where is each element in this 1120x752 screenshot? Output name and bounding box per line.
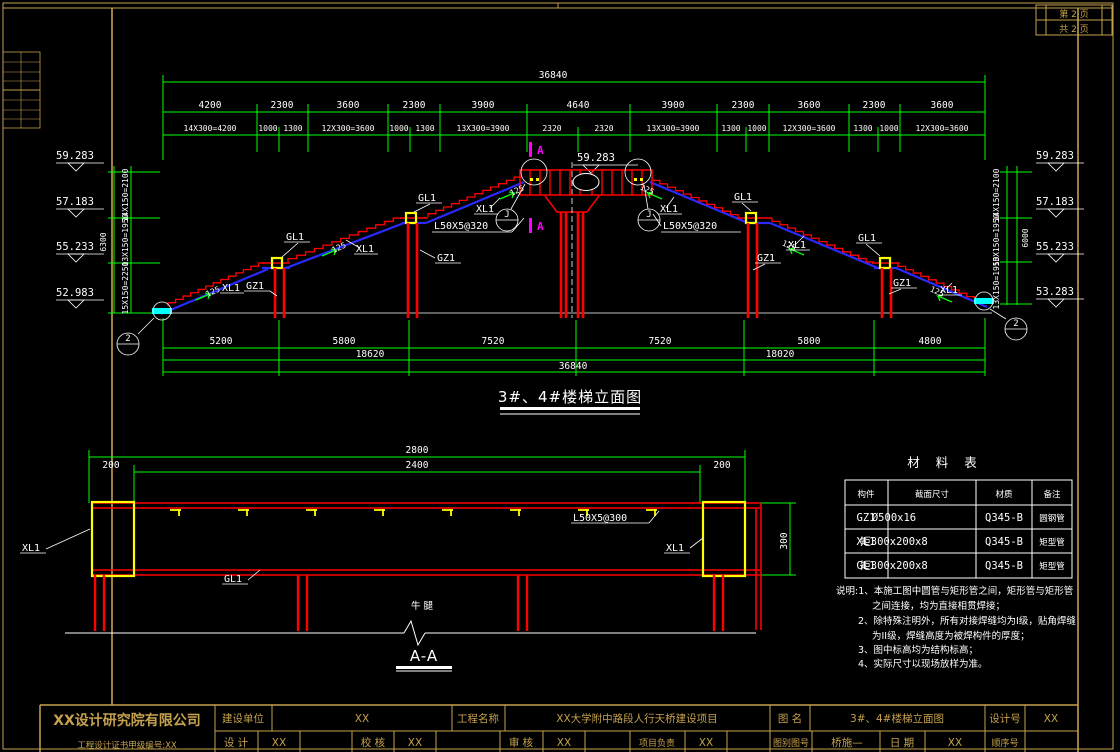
slope-arrows: [196, 192, 952, 302]
right-level-dimensions: 6000 14X150=2100 13X150=1950 13X150=1950…: [992, 150, 1084, 309]
note-line: 之间连接，均为直接相贯焊接；: [872, 600, 1005, 612]
detail-callout: 2: [1005, 318, 1027, 340]
dim-text: 3600: [798, 100, 821, 111]
dim-text: 18620: [356, 349, 385, 360]
svg-text:XL1: XL1: [666, 543, 684, 554]
signature-boxes: [3, 52, 40, 128]
svg-text:L50X5@320: L50X5@320: [434, 221, 488, 232]
dim-text: 1300: [721, 124, 740, 133]
top-dimension-chain: 36840 4200 2300 3600 2300 3900 4640 3900…: [163, 70, 985, 160]
svg-text:Q345-B: Q345-B: [985, 536, 1023, 548]
table-header: 截面尺寸: [915, 489, 950, 500]
field-value: XX: [1044, 713, 1058, 725]
dim-text: 2320: [594, 124, 613, 133]
dim-text: 2320: [542, 124, 561, 133]
dim-text: 15X150=2250: [121, 261, 130, 314]
member-label-xl1: XL1: [658, 197, 682, 215]
dim-text: 1000: [389, 124, 408, 133]
cad-drawing-sheet: 第 2 页 共 2 页 36840 4200 2300 3600 2300 39…: [0, 0, 1120, 752]
table-header: 备注: [1043, 489, 1061, 500]
stair-structure: A A 2 2 J J: [117, 142, 1027, 355]
field-label: 图 名: [778, 712, 802, 725]
svg-text:圆钢管: 圆钢管: [1039, 513, 1065, 524]
field-value: XX: [408, 737, 422, 749]
member-label-gz1: GZ1: [889, 278, 917, 294]
section-cut-a: A A: [529, 142, 544, 233]
dim-text: 14X300=4200: [184, 124, 237, 133]
table-row: GL1 矩300x200x8 Q345-B 矩型管: [857, 559, 1065, 572]
dim-text: 2300: [863, 100, 886, 111]
member-label-angle: L50X5@300: [571, 511, 659, 524]
note-line: 2、除特殊注明外，所有对接焊缝均为I级，贴角焊缝: [858, 615, 1076, 627]
table-title: 材 料 表: [907, 455, 982, 470]
material-table: 材 料 表 构件 截面尺寸 材质 备注 GZ1 Ø500x16 Q345-B 圆…: [845, 455, 1072, 578]
stair-steps: [288, 218, 402, 262]
member-label-gz1: GZ1: [244, 281, 277, 296]
dim-text: 1300: [853, 124, 872, 133]
bearing-right: [974, 292, 1006, 319]
level-text: 59.283: [577, 152, 615, 164]
dim-text: 1000: [879, 124, 898, 133]
level-marker: 57.183: [56, 196, 104, 217]
dim-text: 200: [713, 460, 730, 471]
section-aa: 2800 2400 200 200 300: [20, 445, 796, 671]
svg-text:GL1: GL1: [858, 233, 876, 244]
dim-text: 12X300=3600: [783, 124, 836, 133]
dim-text: 4800: [919, 336, 942, 347]
dim-text: 6000: [1021, 228, 1030, 247]
dim-text: 200: [102, 460, 119, 471]
cut-label: A: [537, 144, 544, 157]
field-label: 校 核: [361, 736, 386, 749]
detail-number: J: [646, 210, 651, 220]
svg-text:GL1: GL1: [224, 574, 242, 585]
svg-text:Ø500x16: Ø500x16: [872, 512, 916, 524]
svg-text:XL1: XL1: [356, 244, 374, 255]
dim-text: 5800: [333, 336, 356, 347]
apex-platform: [520, 159, 652, 195]
note-line: 4、实际尺寸以现场放样为准。: [858, 658, 988, 670]
page-number: 第 2 页: [1059, 8, 1088, 20]
svg-text:XL1: XL1: [660, 204, 678, 215]
page-number-table: 第 2 页 共 2 页: [1036, 5, 1112, 35]
svg-text:GZ1: GZ1: [757, 253, 775, 264]
dim-text: 12X300=3600: [322, 124, 375, 133]
field-label: 设计号: [989, 712, 1021, 725]
level-text: 57.183: [56, 196, 94, 208]
svg-text:矩300x200x8: 矩300x200x8: [860, 535, 927, 548]
svg-text:矩型管: 矩型管: [1039, 561, 1065, 572]
dim-text: 7520: [649, 336, 672, 347]
member-label-gl1: GL1: [414, 193, 442, 212]
page-total: 共 2 页: [1059, 24, 1088, 35]
general-notes: 说明:1、本施工图中圆管与矩形管之间，矩形管与矩形管 之间连接，均为直接相贯焊接…: [836, 585, 1076, 670]
svg-text:Q345-B: Q345-B: [985, 560, 1023, 572]
bottom-dimension-chain: 5200 5800 7520 7520 5800 4800 18620 1802…: [163, 318, 985, 376]
field-label: 图别图号: [773, 738, 809, 749]
table-row: XL1 矩300x200x8 Q345-B 矩型管: [857, 535, 1065, 548]
dim-text: 12X300=3600: [916, 124, 969, 133]
dim-text: 300: [779, 532, 790, 549]
company-cert: 工程设计证书甲级编号:XX: [77, 740, 177, 751]
bearing-left: [138, 302, 172, 334]
level-text: 57.183: [1036, 196, 1074, 208]
dim-text: 7520: [482, 336, 505, 347]
level-marker: 55.233: [1036, 241, 1084, 262]
detail-number: 2: [125, 334, 130, 344]
xl1-end-beam: [703, 502, 745, 576]
member-label-xl1: XL1: [220, 283, 244, 294]
dim-text: 36840: [539, 70, 568, 81]
slope-text: 125: [331, 241, 348, 255]
field-label: 审 核: [509, 736, 534, 749]
dim-text: 3600: [337, 100, 360, 111]
svg-text:XL1: XL1: [940, 285, 958, 296]
field-value: 3#、4#楼梯立面图: [850, 712, 944, 725]
field-label: 工程名称: [457, 712, 499, 725]
svg-text:L50X5@300: L50X5@300: [573, 513, 627, 524]
level-marker: 55.233: [56, 241, 104, 262]
dim-text: 2300: [271, 100, 294, 111]
svg-text:Q345-B: Q345-B: [985, 512, 1023, 524]
dim-text: 18020: [766, 349, 795, 360]
dim-text: 3900: [472, 100, 495, 111]
dim-text: 1000: [258, 124, 277, 133]
drawing-canvas: 第 2 页 共 2 页 36840 4200 2300 3600 2300 39…: [0, 0, 1120, 752]
dim-text: 2800: [406, 445, 429, 456]
dim-text: 1000: [747, 124, 766, 133]
svg-text:GL1: GL1: [734, 192, 752, 203]
dim-text: 13X300=3900: [647, 124, 700, 133]
member-label-xl1: XL1: [20, 529, 90, 554]
svg-text:XL1: XL1: [222, 283, 240, 294]
cut-label: A: [537, 220, 544, 233]
svg-text:GZ1: GZ1: [437, 253, 455, 264]
svg-text:GL1: GL1: [286, 232, 304, 243]
field-value: XX: [699, 737, 713, 749]
table-row: GZ1 Ø500x16 Q345-B 圆钢管: [857, 512, 1065, 524]
svg-text:XL1: XL1: [476, 204, 494, 215]
field-label: 日 期: [890, 737, 914, 749]
dim-text: 5800: [798, 336, 821, 347]
level-text: 52.983: [56, 287, 94, 299]
section-columns: [95, 575, 723, 631]
note-line: 说明:1、本施工图中圆管与矩形管之间，矩形管与矩形管: [836, 585, 1073, 597]
break-line: [404, 621, 425, 645]
svg-text:矩300x200x8: 矩300x200x8: [860, 559, 927, 572]
svg-text:GZ1: GZ1: [893, 278, 911, 289]
detail-number: 2: [1013, 319, 1018, 329]
field-value: XX: [557, 737, 571, 749]
drawing-title: 3#、4#楼梯立面图: [498, 388, 642, 406]
note-line: 为II级，焊缝高度为被焊构件的厚度；: [872, 630, 1030, 642]
dim-text: 5200: [210, 336, 233, 347]
level-marker: 52.983: [56, 287, 104, 308]
level-text: 53.283: [1036, 286, 1074, 298]
member-label-gl1: GL1: [732, 192, 758, 211]
dim-text: 13X300=3900: [457, 124, 510, 133]
title-block: XX设计研究院有限公司 工程设计证书甲级编号:XX 建设单位 XX 工程名称 X…: [40, 705, 1078, 752]
dim-text: 3900: [662, 100, 685, 111]
dim-text: 4200: [199, 100, 222, 111]
member-label-gz1: GZ1: [420, 250, 461, 264]
level-text: 59.283: [1036, 150, 1074, 162]
company-name: XX设计研究院有限公司: [53, 712, 201, 729]
level-text: 55.233: [56, 241, 94, 253]
dim-text: 1300: [415, 124, 434, 133]
member-label-angle: L50X5@320: [653, 214, 741, 232]
field-label: 顺序号: [991, 737, 1018, 749]
dim-text: 6300: [99, 232, 108, 251]
detail-callout: 2: [117, 333, 139, 355]
note-line: 3、图中标高均为结构标高；: [858, 644, 978, 656]
field-value: XX: [272, 737, 286, 749]
xl1-end-beam: [92, 502, 134, 576]
level-marker: 53.283: [1036, 286, 1084, 307]
elevation-title: 3#、4#楼梯立面图: [498, 388, 642, 414]
member-label-gl1: GL1: [222, 570, 260, 585]
table-header: 材质: [995, 489, 1013, 500]
dim-text: 2300: [732, 100, 755, 111]
detail-number: J: [504, 210, 509, 220]
corbel-label: 牛 腿: [411, 600, 434, 612]
level-marker: 57.183: [1036, 196, 1084, 217]
svg-text:XL1: XL1: [788, 240, 806, 251]
dim-text: 1300: [283, 124, 302, 133]
field-label: 建设单位: [222, 712, 264, 725]
level-marker: 59.283: [1036, 150, 1084, 171]
svg-text:XL1: XL1: [22, 543, 40, 554]
drawing-title: A-A: [410, 647, 438, 665]
svg-text:L50X5@320: L50X5@320: [663, 221, 717, 232]
field-value: XX: [355, 713, 369, 725]
svg-text:矩型管: 矩型管: [1039, 537, 1065, 548]
section-title: A-A: [396, 647, 452, 671]
dim-text: 3600: [931, 100, 954, 111]
svg-text:GZ1: GZ1: [246, 281, 264, 292]
level-text: 59.283: [56, 150, 94, 162]
level-marker: 59.283: [56, 150, 104, 171]
dim-text: 36840: [559, 361, 588, 372]
dim-text: 4640: [567, 100, 590, 111]
member-label-gl1: GL1: [856, 233, 882, 256]
section-structure: 牛 腿: [65, 502, 761, 645]
field-label: 项目负责: [639, 737, 675, 749]
field-value: XX: [948, 737, 962, 749]
level-text: 55.233: [1036, 241, 1074, 253]
member-label-xl1: XL1: [664, 538, 703, 554]
dim-text: 2400: [406, 460, 429, 471]
field-value: XX大学附中路段人行天桥建设项目: [556, 712, 717, 725]
svg-text:GL1: GL1: [418, 193, 436, 204]
field-value: 桥施—: [831, 736, 863, 749]
table-header: 构件: [857, 489, 875, 500]
dim-text: 13X150=1950: [121, 213, 130, 266]
left-level-dimensions: 6300 14X150=2100 13X150=1950 15X150=2250…: [56, 150, 160, 314]
field-label: 设 计: [224, 736, 249, 749]
dim-text: 2300: [403, 100, 426, 111]
